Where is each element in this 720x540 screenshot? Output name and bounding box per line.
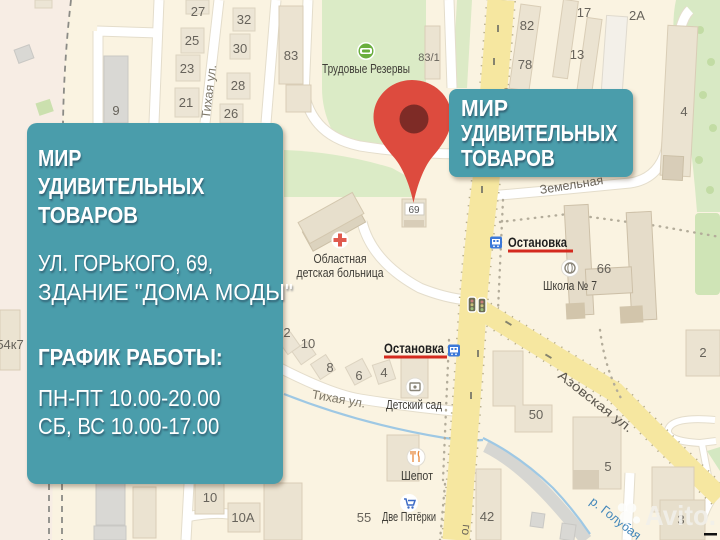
svg-text:66: 66 (597, 261, 611, 276)
svg-text:54к7: 54к7 (0, 337, 24, 352)
svg-text:83/1: 83/1 (418, 52, 439, 64)
svg-text:82: 82 (520, 18, 534, 33)
svg-text:4: 4 (380, 365, 387, 380)
svg-text:28: 28 (231, 78, 245, 93)
svg-text:83: 83 (284, 48, 298, 63)
svg-text:25: 25 (185, 33, 199, 48)
svg-text:32: 32 (237, 12, 251, 27)
svg-text:21: 21 (179, 95, 193, 110)
svg-text:50: 50 (529, 407, 543, 422)
svg-text:10А: 10А (231, 510, 254, 525)
svg-text:2А: 2А (629, 8, 645, 23)
svg-text:Остановка: Остановка (508, 234, 567, 250)
svg-text:Остановка: Остановка (384, 340, 444, 356)
svg-text:10: 10 (203, 490, 217, 505)
svg-text:78: 78 (518, 57, 532, 72)
svg-text:го: го (459, 524, 474, 537)
svg-text:Шепот: Шепот (401, 469, 433, 483)
svg-text:55: 55 (357, 510, 371, 525)
svg-text:Avito.: Avito. (645, 500, 716, 531)
svg-text:Областная: Областная (314, 252, 367, 266)
svg-text:Школа № 7: Школа № 7 (543, 279, 597, 293)
svg-text:4: 4 (680, 104, 687, 119)
svg-text:Детский сад: Детский сад (386, 398, 443, 412)
svg-text:6: 6 (355, 368, 362, 383)
svg-text:69: 69 (408, 205, 420, 216)
svg-text:8: 8 (326, 360, 333, 375)
svg-text:детская больница: детская больница (297, 266, 384, 280)
svg-text:9: 9 (112, 103, 119, 118)
svg-text:2: 2 (283, 325, 290, 340)
svg-text:Трудовые Резервы: Трудовые Резервы (322, 62, 410, 76)
svg-text:23: 23 (180, 61, 194, 76)
svg-text:30: 30 (233, 41, 247, 56)
svg-text:27: 27 (191, 4, 205, 19)
svg-text:17: 17 (577, 5, 591, 20)
svg-text:42: 42 (480, 509, 494, 524)
svg-text:26: 26 (224, 106, 238, 121)
svg-text:5: 5 (604, 459, 611, 474)
svg-text:Две Пятёрки: Две Пятёрки (382, 510, 436, 524)
svg-text:13: 13 (570, 47, 584, 62)
svg-text:10: 10 (301, 336, 315, 351)
svg-text:2: 2 (699, 345, 706, 360)
